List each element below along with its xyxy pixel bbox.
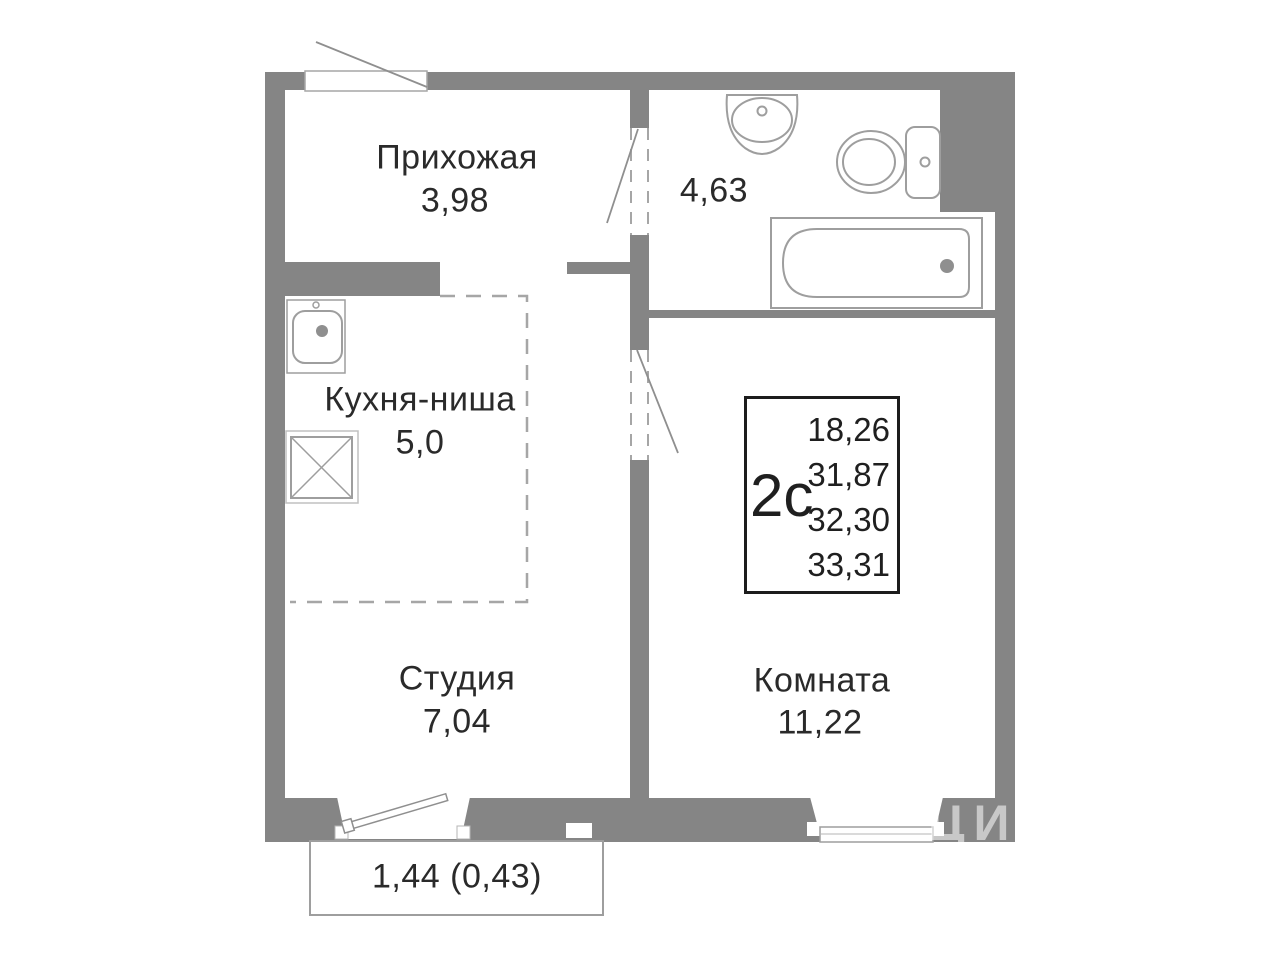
wall-hallway-stub [567, 262, 630, 274]
wall-bathroom-bottom [649, 310, 995, 318]
wall-hallway-studio [285, 262, 440, 296]
bathroom-door [607, 128, 651, 235]
hallway-label: Прихожая [376, 139, 538, 178]
unit-area-3: 32,30 [807, 497, 890, 542]
bathtub-drain [940, 259, 954, 273]
wall-left [265, 72, 285, 842]
kitchen-sink-bowl [293, 311, 342, 363]
toilet-fixture [837, 127, 940, 198]
wall-notch [566, 823, 592, 838]
hallway-area: 3,98 [421, 182, 489, 221]
toilet-bowl-inner [843, 139, 895, 185]
balcony-door [335, 791, 470, 839]
bathtub-fixture [771, 218, 982, 308]
window [807, 797, 944, 842]
bathroom-area: 4,63 [680, 172, 748, 211]
unit-area-1: 18,26 [807, 407, 890, 452]
wall-shaft-block [940, 90, 995, 212]
kitchen-area: 5,0 [396, 424, 445, 463]
toilet-button [921, 158, 930, 167]
kitchen-sink-faucet [313, 302, 319, 308]
kitchen-sink-drain [316, 325, 328, 337]
unit-area-2: 31,87 [807, 452, 890, 497]
entrance-door-slab [305, 71, 427, 91]
floor-plan: Прихожая 3,98 4,63 Кухня-ниша 5,0 Студия… [0, 0, 1280, 960]
kitchen-label: Кухня-ниша [324, 381, 515, 420]
window-opening [810, 797, 943, 827]
watermark: ЦИАН [928, 794, 1228, 852]
unit-type-label: 2с [750, 461, 813, 530]
balcony-area: 1,44 (0,43) [372, 858, 542, 897]
kitchen-sink-fixture [287, 300, 345, 373]
room-door [628, 350, 678, 460]
balcony-door-frame-right [457, 826, 470, 839]
unit-card: 2с 18,26 31,87 32,30 33,31 [744, 396, 900, 594]
stove-fixture [286, 431, 358, 503]
wash-basin-faucet [758, 107, 767, 116]
unit-area-4: 33,31 [807, 542, 890, 587]
studio-label: Студия [399, 660, 516, 699]
wash-basin-bowl [732, 98, 792, 142]
studio-area: 7,04 [423, 703, 491, 742]
room-area: 11,22 [777, 704, 862, 743]
wash-basin-fixture [727, 95, 798, 154]
unit-areas: 18,26 31,87 32,30 33,31 [807, 407, 890, 587]
wall-right [995, 72, 1015, 842]
entrance-door [305, 42, 427, 91]
room-label: Комната [754, 662, 891, 701]
balcony-door-gap [337, 797, 470, 839]
